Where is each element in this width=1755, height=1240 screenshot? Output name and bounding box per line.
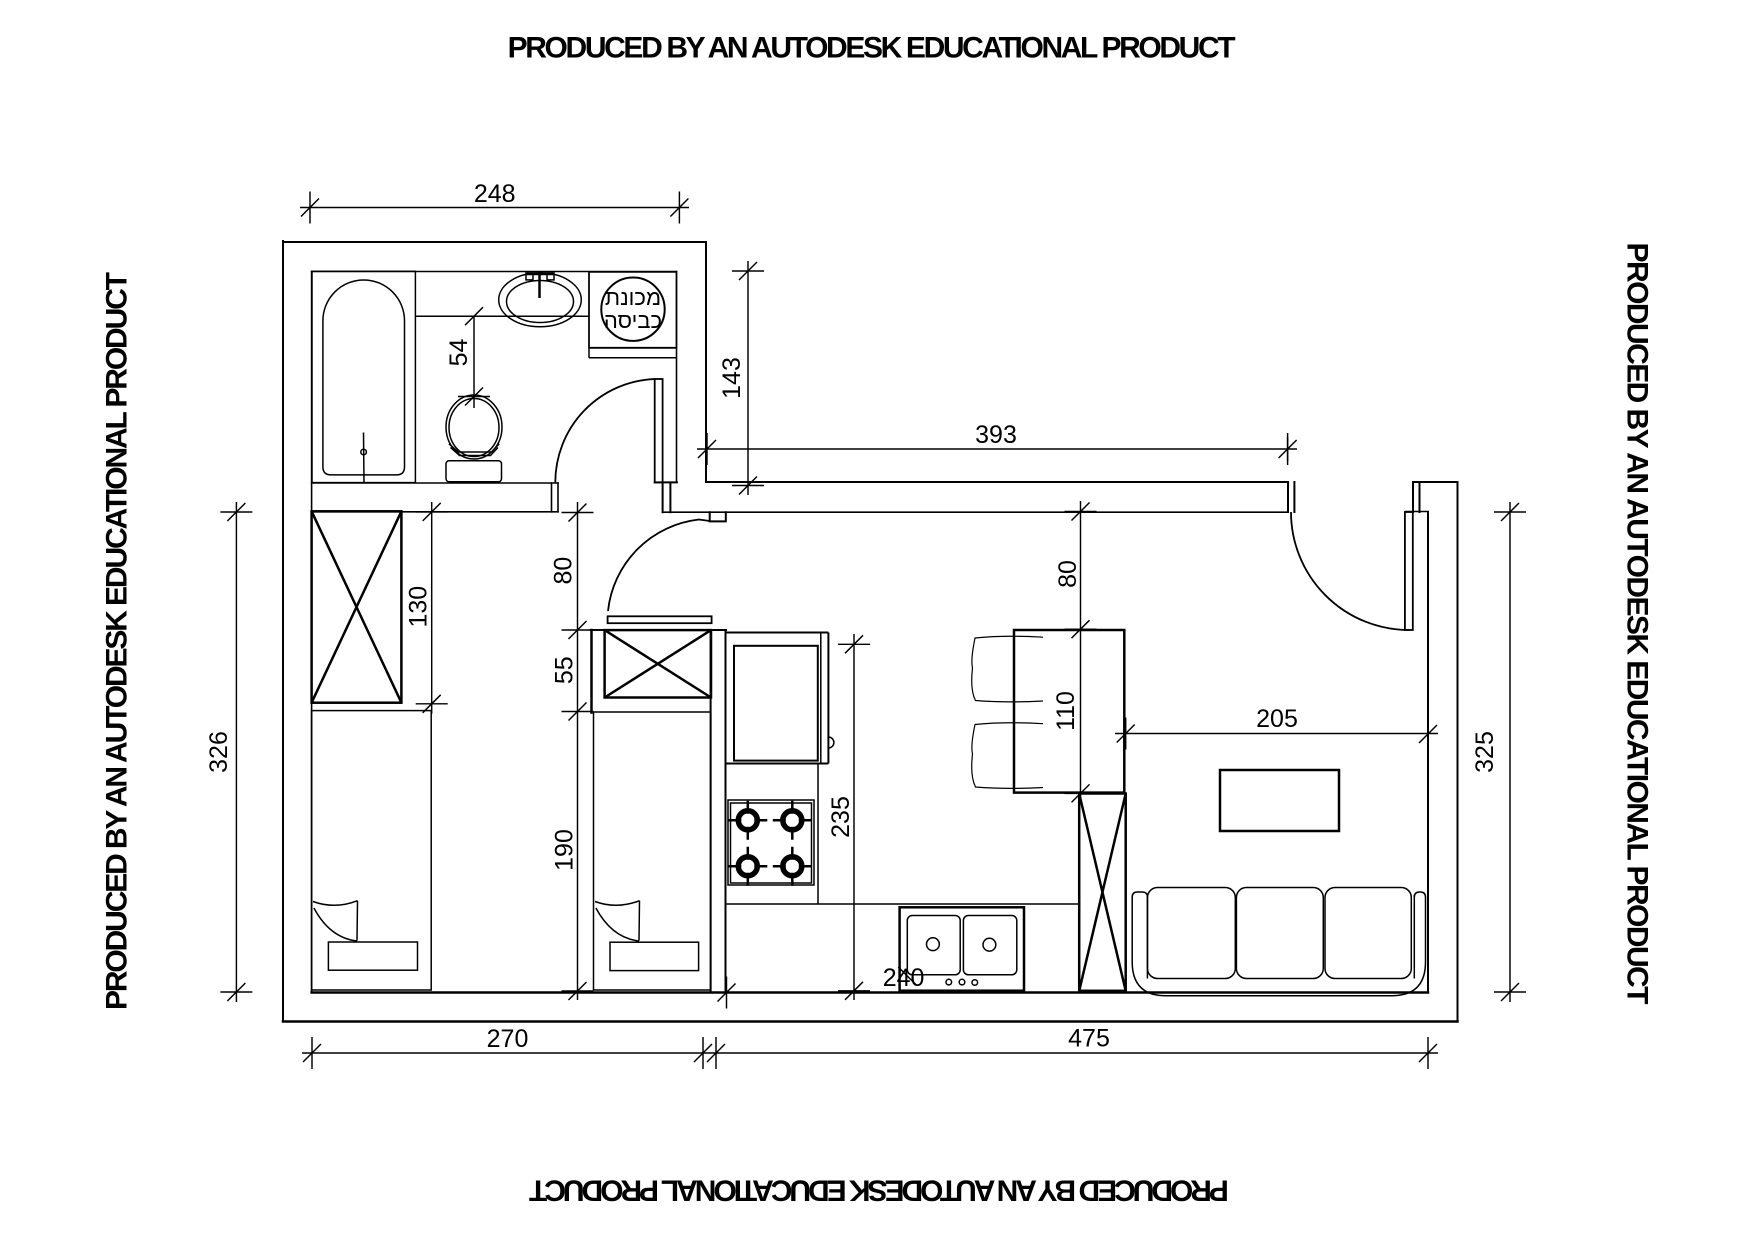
- svg-text:כביסה: כביסה: [604, 308, 662, 333]
- svg-text:326: 326: [205, 731, 233, 773]
- svg-text:PRODUCED BY AN AUTODESK EDUCAT: PRODUCED BY AN AUTODESK EDUCATIONAL PROD…: [529, 1174, 1229, 1207]
- svg-text:235: 235: [827, 796, 855, 838]
- svg-text:475: 475: [1068, 1025, 1110, 1053]
- svg-text:54: 54: [445, 339, 473, 367]
- svg-text:מכונת: מכונת: [605, 285, 661, 310]
- svg-text:80: 80: [1054, 560, 1082, 588]
- svg-text:190: 190: [551, 829, 579, 871]
- svg-text:270: 270: [487, 1025, 529, 1053]
- svg-text:55: 55: [551, 656, 579, 684]
- svg-text:325: 325: [1471, 731, 1499, 773]
- svg-text:240: 240: [883, 964, 925, 992]
- svg-text:393: 393: [975, 421, 1017, 449]
- svg-text:PRODUCED BY AN AUTODESK EDUCAT: PRODUCED BY AN AUTODESK EDUCATIONAL PROD…: [508, 32, 1236, 65]
- svg-text:PRODUCED BY AN AUTODESK EDUCAT: PRODUCED BY AN AUTODESK EDUCATIONAL PROD…: [101, 272, 134, 1010]
- svg-text:143: 143: [718, 357, 746, 399]
- svg-text:248: 248: [474, 180, 516, 208]
- svg-text:80: 80: [550, 557, 578, 585]
- svg-text:130: 130: [405, 586, 433, 628]
- svg-text:205: 205: [1256, 705, 1298, 733]
- svg-text:PRODUCED BY AN AUTODESK EDUCAT: PRODUCED BY AN AUTODESK EDUCATIONAL PROD…: [1621, 243, 1654, 1005]
- svg-text:110: 110: [1052, 691, 1080, 731]
